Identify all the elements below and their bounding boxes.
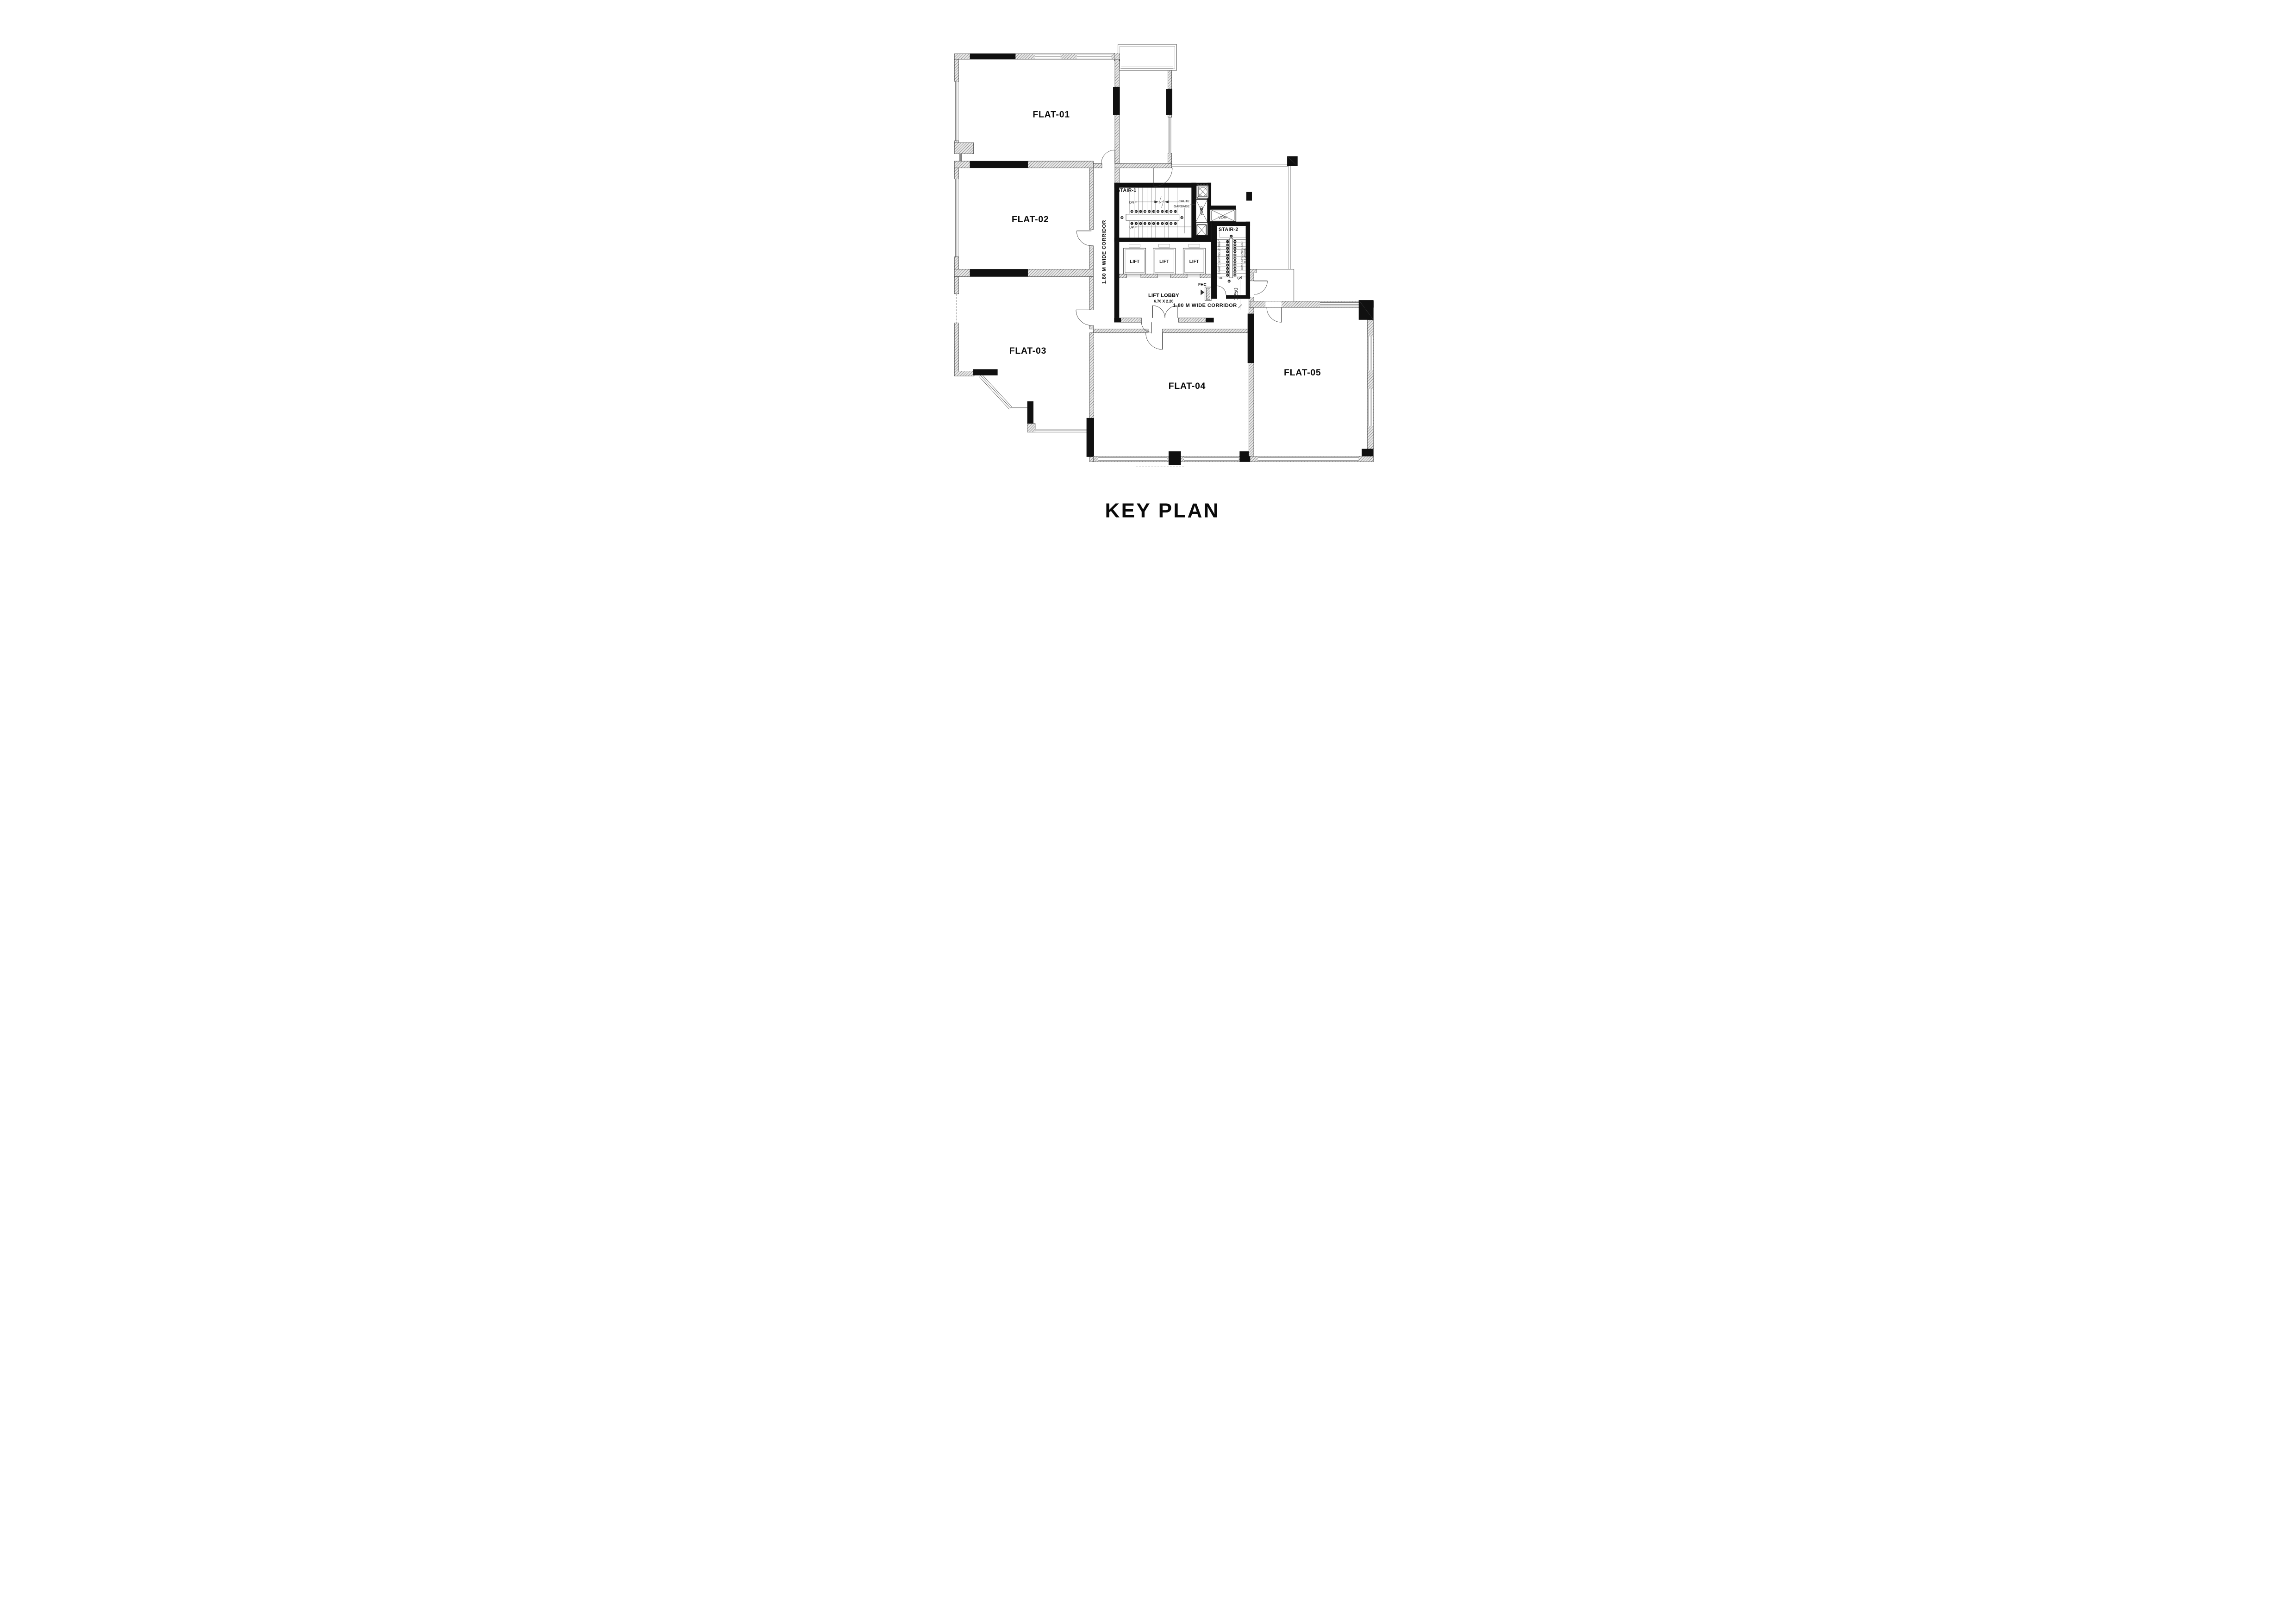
wall-step: [954, 143, 973, 154]
wall: [1140, 274, 1157, 278]
flat-04: FLAT-04: [1093, 329, 1250, 467]
wall: [1114, 237, 1196, 242]
stair2-note-right-2: W 3 GROOVE: [1244, 248, 1246, 263]
flat-04-label: FLAT-04: [1168, 381, 1205, 391]
wall: [1114, 59, 1119, 87]
wall: [954, 59, 958, 81]
svg-text:13: 13: [1234, 240, 1236, 243]
lift-lobby-size: 6.70 X 2.20: [1154, 299, 1174, 303]
window: [959, 154, 962, 162]
svg-text:18: 18: [1152, 210, 1155, 212]
door-flat-03: [1076, 310, 1091, 325]
svg-text:10: 10: [1170, 222, 1172, 225]
chute-label-2: GARBAGE: [1174, 205, 1190, 208]
void-shaft-horizontal: VOID: [1210, 209, 1236, 222]
wall: [1212, 222, 1250, 226]
lift-lobby-label: LIFT LOBBY: [1148, 293, 1179, 298]
wall: [1170, 274, 1187, 278]
flat-02-label: FLAT-02: [1012, 215, 1049, 225]
stair2-top-num: 12: [1230, 235, 1232, 237]
column: [973, 369, 997, 375]
svg-text:15: 15: [1165, 210, 1168, 212]
wall: [1114, 168, 1119, 184]
svg-text:23: 23: [1131, 210, 1133, 212]
lift-1-label: LIFT: [1130, 259, 1139, 264]
wall: [1114, 183, 1196, 188]
flat-01: FLAT-01: [954, 44, 1176, 165]
corridor-vertical-label: 1.80 M WIDE CORRIDOR: [1101, 220, 1107, 284]
svg-text:10: 10: [1226, 244, 1229, 246]
lift-2-label: LIFT: [1159, 259, 1169, 264]
svg-text:14: 14: [1170, 210, 1172, 212]
wall: [1162, 329, 1250, 333]
column: [1166, 89, 1172, 115]
svg-text:16: 16: [1234, 250, 1236, 253]
wall: [954, 168, 958, 179]
flat-05-label: FLAT-05: [1284, 368, 1321, 378]
column: [1113, 87, 1120, 115]
stair-2-label: STAIR-2: [1219, 227, 1238, 232]
wall: [954, 371, 974, 376]
corridor-horizontal-label: 1.80 M WIDE CORRIDOR: [1173, 303, 1237, 308]
column: [970, 269, 1027, 276]
lift-3: LIFT: [1183, 248, 1205, 274]
stair2-numbers-down: 1314151617181920212223: [1233, 240, 1236, 277]
lift-3-label: LIFT: [1189, 259, 1199, 264]
stair2-note-right-1: 1030 X 300 GRANITE STEP: [1241, 240, 1244, 270]
wall: [1089, 276, 1093, 310]
fhc-label: FHC: [1198, 282, 1207, 287]
wall: [1195, 235, 1211, 242]
window-chamfer: [979, 374, 1027, 409]
wall: [1114, 115, 1119, 163]
column: [1169, 451, 1181, 465]
flat-03-label: FLAT-03: [1009, 346, 1046, 356]
svg-text:22: 22: [1135, 210, 1137, 212]
stair-treads: [1129, 187, 1177, 213]
svg-text:19: 19: [1148, 210, 1151, 212]
wall: [1089, 325, 1093, 329]
void-shaft-vertical: VOID: [1195, 200, 1207, 222]
window: [1258, 456, 1358, 461]
stair1-landing-left: 24: [1121, 216, 1123, 219]
wall: [954, 257, 958, 269]
dn-label: DN: [1129, 200, 1134, 204]
stair2-note-left: GRANITE SKIRTING 100 MM HT: [1218, 239, 1221, 274]
svg-text:14: 14: [1234, 244, 1236, 246]
window: [1319, 302, 1359, 307]
stair-landing: [1126, 214, 1179, 220]
void-label-vertical: VOID: [1200, 206, 1204, 215]
wall: [954, 276, 958, 294]
garbage-chute: [1197, 184, 1208, 198]
balcony: [1114, 44, 1176, 70]
stair-1-label: STAIR-1: [1116, 188, 1136, 194]
svg-text:17: 17: [1157, 210, 1159, 212]
svg-text:17: 17: [1234, 254, 1236, 256]
wall: [1093, 329, 1148, 333]
svg-text:21: 21: [1139, 210, 1142, 212]
door-flat-01: [1101, 150, 1114, 163]
wall: [1212, 222, 1217, 299]
svg-text:19: 19: [1234, 261, 1236, 263]
wall: [1089, 168, 1093, 230]
lift-1: LIFT: [1123, 248, 1145, 274]
svg-text:20: 20: [1234, 264, 1236, 266]
key-plan-sheet: FLAT-01 FLAT-02: [765, 0, 1531, 542]
void-shaft-small: [1197, 225, 1206, 235]
door-stair-2: [1217, 286, 1226, 295]
wall: [1200, 274, 1211, 278]
wall: [1212, 295, 1217, 299]
column: [970, 53, 1015, 59]
dim-1250-label: 1250: [1232, 287, 1239, 300]
svg-text:23: 23: [1234, 274, 1236, 276]
column: [1114, 318, 1121, 322]
wall: [1114, 242, 1119, 322]
window: [954, 179, 958, 257]
core: STAIR-1 DN UP 2322212019181716151413 123…: [1114, 168, 1250, 333]
chute-label-1: CHUTE: [1178, 200, 1189, 203]
window: [1168, 117, 1171, 153]
wall: [1114, 163, 1171, 168]
column: [1206, 318, 1213, 322]
svg-text:18: 18: [1234, 257, 1236, 259]
lift-2: LIFT: [1153, 248, 1175, 274]
column: [1086, 418, 1094, 457]
wall: [1119, 274, 1126, 278]
wall: [954, 323, 958, 372]
stair1-numbers-up: 1234567891011: [1130, 222, 1176, 225]
floor-plan: FLAT-01 FLAT-02: [765, 0, 1531, 542]
wall: [1093, 163, 1102, 168]
flat-03: FLAT-03: [954, 276, 1094, 462]
flat-01-label: FLAT-01: [1033, 110, 1070, 119]
svg-text:21: 21: [1234, 267, 1236, 269]
column: [1239, 451, 1250, 462]
stair1-numbers-down: 2322212019181716151413: [1130, 210, 1176, 213]
wall: [1027, 424, 1035, 432]
stair1-landing-right: 12: [1181, 216, 1183, 219]
column: [1247, 313, 1253, 363]
column: [1246, 192, 1252, 201]
svg-text:16: 16: [1161, 210, 1164, 212]
stair-divider: [1230, 238, 1233, 278]
svg-text:15: 15: [1234, 247, 1236, 249]
column: [970, 161, 1027, 168]
door-flat-05: [1267, 307, 1282, 322]
svg-text:22: 22: [1234, 270, 1236, 273]
window: [954, 81, 958, 141]
door-flat-02: [1076, 231, 1091, 246]
column: [1027, 401, 1033, 424]
stair-1: STAIR-1 DN UP 2322212019181716151413 123…: [1114, 168, 1199, 242]
stair2-up: UP: [1219, 276, 1223, 280]
wall: [1089, 246, 1093, 269]
wall: [1168, 70, 1171, 89]
window: [1035, 429, 1088, 433]
door-flat-04: [1145, 333, 1162, 350]
stair-2: STAIR-2 1234567891011 131415161718192021…: [1212, 222, 1250, 310]
stair2-dn: DN: [1237, 276, 1242, 280]
door-opening: [1265, 301, 1282, 307]
stair2-numbers-up: 1234567891011: [1226, 240, 1229, 277]
flat-02: FLAT-02: [954, 161, 1093, 276]
stair2-bottom-num: 24: [1228, 280, 1230, 282]
door-vestibule: [1254, 281, 1267, 294]
wall: [1168, 115, 1171, 117]
fire-hose-cabinet: FHC: [1198, 282, 1211, 300]
svg-text:20: 20: [1144, 210, 1146, 212]
svg-text:13: 13: [1174, 210, 1176, 212]
up-label: UP: [1129, 225, 1134, 229]
page-title: KEY PLAN: [1105, 500, 1220, 522]
wall: [1207, 206, 1236, 209]
